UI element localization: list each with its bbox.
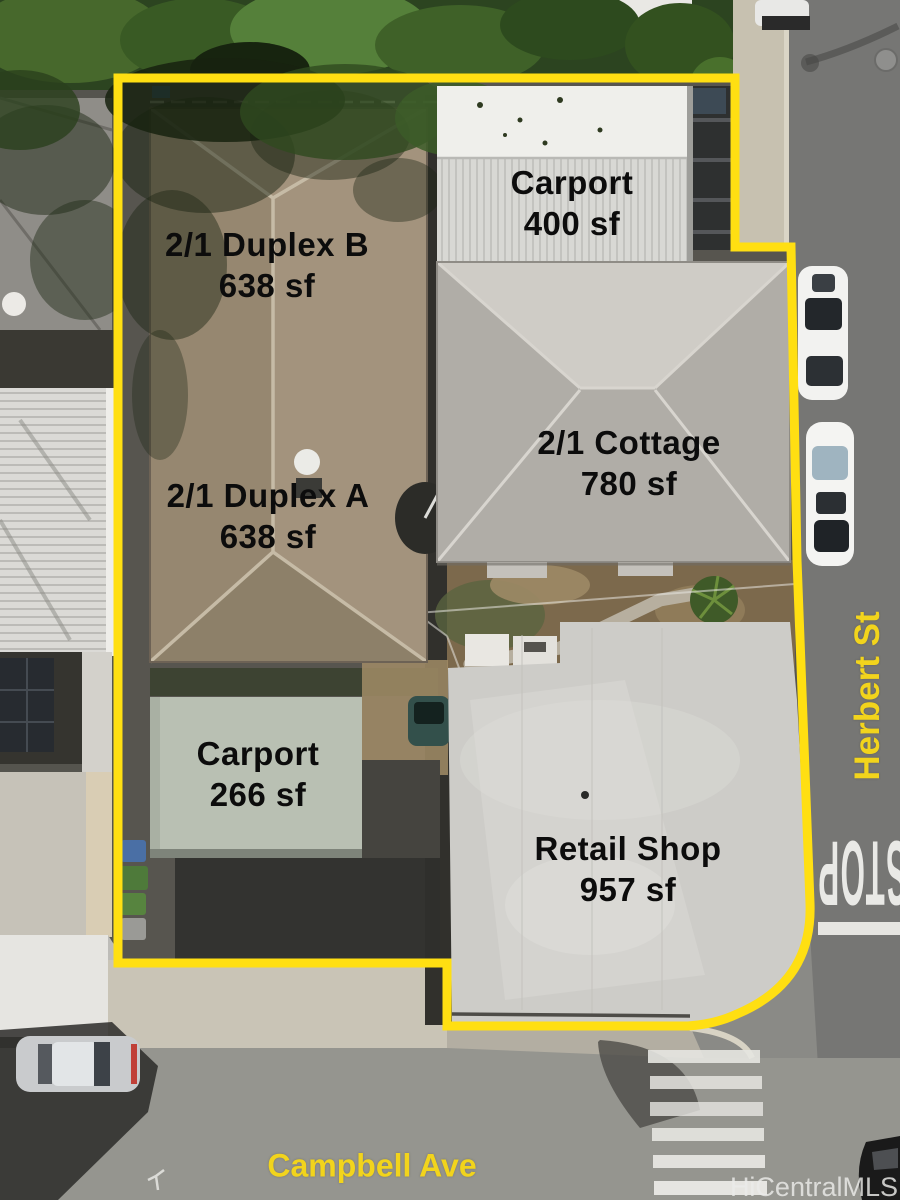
manhole-cover	[875, 49, 897, 71]
label-duplex-a-area: 638 sf	[167, 517, 370, 558]
label-carport-400-area: 400 sf	[511, 204, 634, 245]
trash-bins	[119, 840, 148, 940]
label-retail-area: 957 sf	[534, 870, 721, 911]
retail-roof-highlight	[460, 700, 740, 820]
curb-right	[784, 0, 789, 249]
label-cottage: 2/1 Cottage 780 sf	[537, 423, 720, 505]
green-bin	[119, 866, 148, 890]
parked-car-alley	[408, 696, 450, 746]
label-carport-400-name: Carport	[511, 163, 634, 204]
rear-two-story-structure	[686, 86, 735, 250]
label-carport-266-name: Carport	[197, 734, 320, 775]
sandy-strip	[86, 772, 112, 937]
label-retail-name: Retail Shop	[534, 829, 721, 870]
label-cottage-name: 2/1 Cottage	[537, 423, 720, 464]
label-carport-400: Carport 400 sf	[511, 163, 634, 245]
green-bin	[119, 893, 146, 915]
aerial-photo-scene	[0, 0, 900, 1200]
street-label-herbert-st: Herbert St	[848, 611, 888, 780]
label-carport-266: Carport 266 sf	[197, 734, 320, 816]
label-duplex-b: 2/1 Duplex B 638 sf	[165, 225, 369, 307]
parked-suv-white	[798, 266, 848, 400]
carport-266-shadow	[150, 849, 362, 858]
blue-bin	[121, 840, 146, 862]
label-duplex-a: 2/1 Duplex A 638 sf	[167, 476, 370, 558]
aerial-photo: 2/1 Duplex B 638 sf Carport 400 sf 2/1 C…	[0, 0, 900, 1200]
parked-car-partial-shadow	[762, 16, 810, 30]
light-column	[82, 652, 112, 772]
carport-400-edge-shadow	[687, 86, 693, 263]
taillights	[131, 1044, 137, 1084]
streetlight-shadow-head	[801, 54, 819, 72]
sidewalk-bottom	[108, 960, 448, 1052]
watermark-hicentralmls: HiCentralMLS	[730, 1172, 898, 1200]
parked-sedan-white	[806, 422, 854, 566]
dark-asphalt-patch	[175, 855, 440, 960]
carport-400-white-top	[437, 86, 692, 158]
corner-building-roof	[0, 935, 108, 1037]
retail-building	[448, 622, 808, 1024]
road-surface-right	[788, 0, 900, 1200]
roof-object	[581, 791, 589, 799]
label-duplex-a-name: 2/1 Duplex A	[167, 476, 370, 517]
label-duplex-b-area: 638 sf	[165, 266, 369, 307]
gray-bin	[121, 918, 146, 940]
retail-bottom-edge	[452, 1014, 690, 1016]
sidewalk-right	[733, 0, 789, 249]
label-retail: Retail Shop 957 sf	[534, 829, 721, 911]
street-label-campbell-ave: Campbell Ave	[267, 1148, 476, 1185]
label-carport-266-area: 266 sf	[197, 775, 320, 816]
label-cottage-area: 780 sf	[537, 464, 720, 505]
satellite-dish	[2, 292, 26, 316]
roof-vent	[294, 449, 320, 475]
parked-car-silver	[16, 1036, 140, 1092]
dark-gap	[0, 330, 118, 388]
label-duplex-b-name: 2/1 Duplex B	[165, 225, 369, 266]
carport-266-edge	[150, 697, 160, 855]
stop-road-marking: STOP	[817, 820, 900, 925]
cottage-building	[437, 262, 790, 578]
